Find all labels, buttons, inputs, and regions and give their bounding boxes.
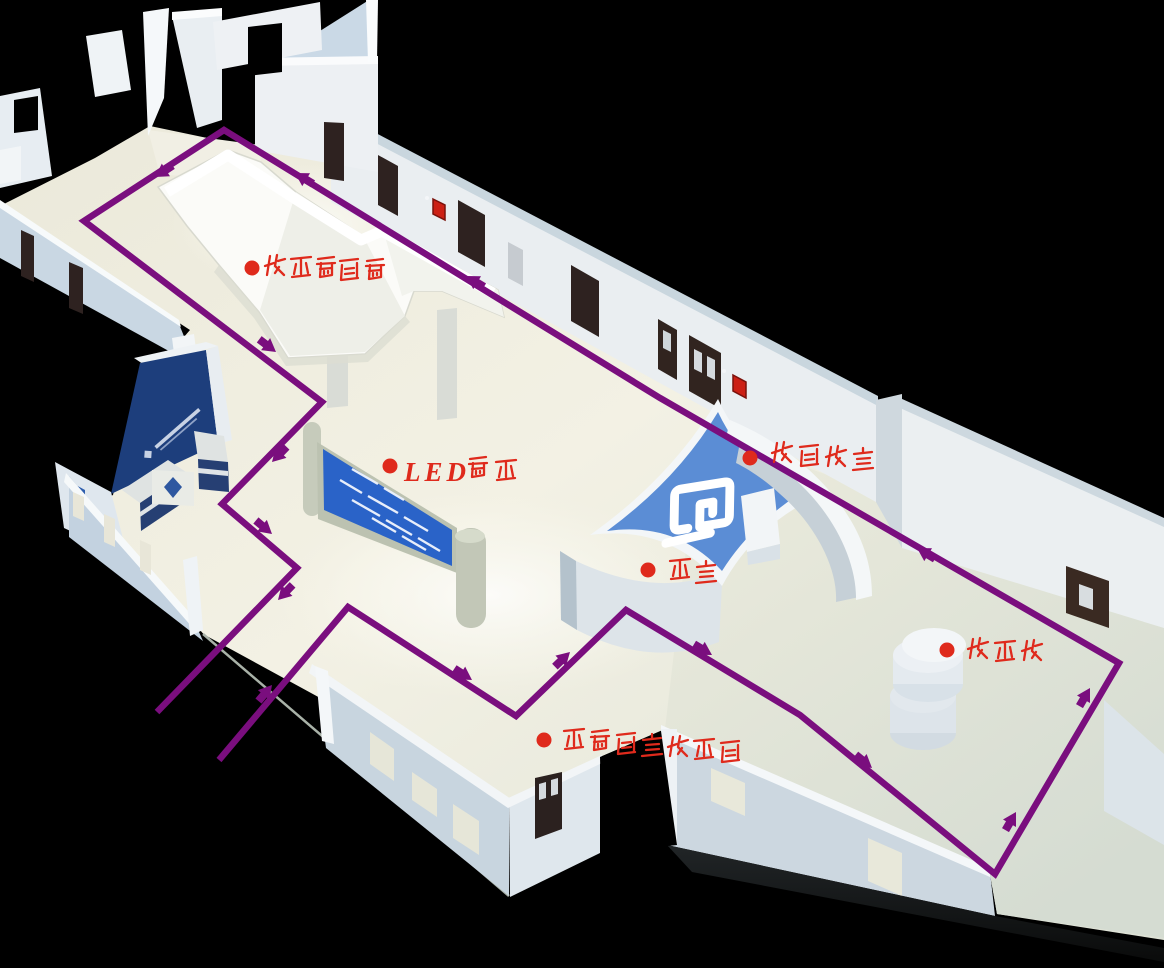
svg-text:LED: LED [403,457,470,487]
